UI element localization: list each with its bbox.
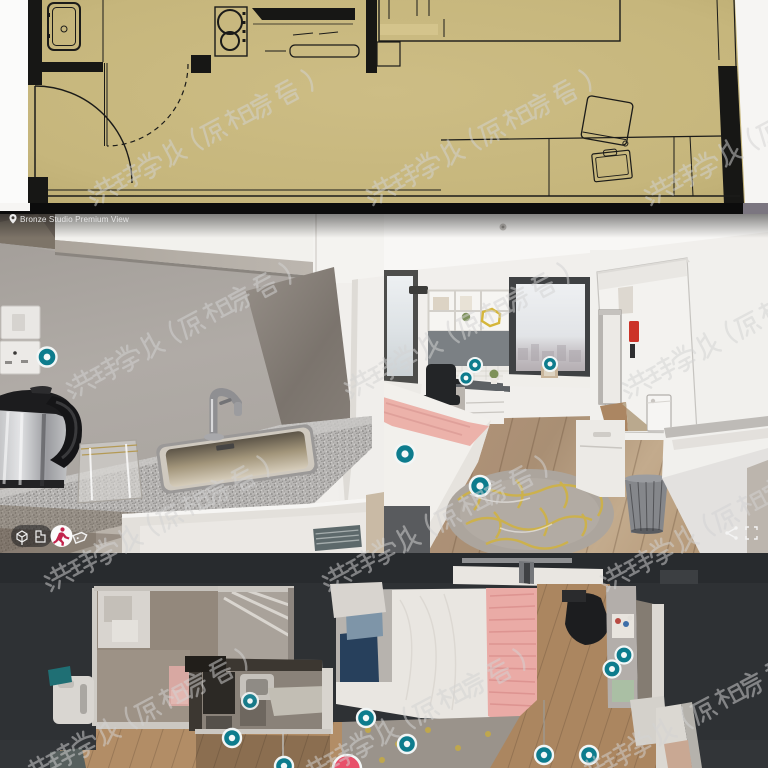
svg-text:Bronze Studio Premium View: Bronze Studio Premium View [20,215,129,224]
